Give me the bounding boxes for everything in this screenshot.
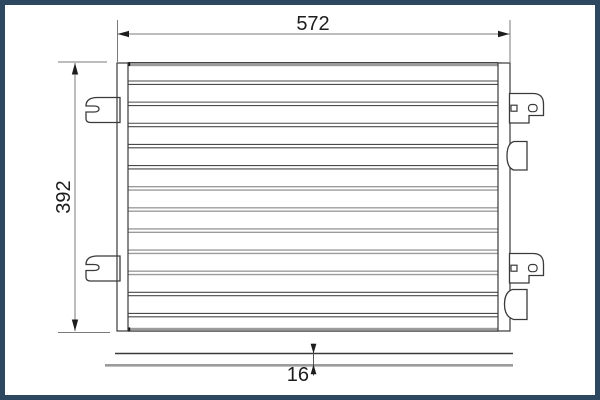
depth-side-view (105, 354, 513, 366)
mount-bracket-top-right (510, 94, 544, 124)
left-tank (117, 63, 128, 331)
condenser-diagram: 572 392 16 (0, 0, 600, 400)
pipe-fitting-upper (507, 142, 527, 171)
height-dimension: 392 (53, 62, 110, 333)
core-bottom-header (128, 328, 498, 331)
pipe-fitting-lower (505, 290, 528, 320)
core-top-header (128, 63, 498, 66)
mount-bracket-bottom-left (86, 256, 120, 281)
core-face (128, 63, 498, 331)
arrow-down-icon (311, 344, 317, 354)
width-dimension: 572 (118, 13, 511, 62)
height-dimension-label: 392 (53, 180, 75, 213)
arrow-up-icon (72, 63, 78, 75)
mount-bracket-bottom-right (510, 254, 544, 284)
right-tank (498, 63, 510, 331)
depth-dimension-label: 16 (287, 364, 309, 386)
bracket-outline (510, 254, 544, 284)
arrow-left-icon (118, 31, 130, 37)
technical-drawing-canvas: 572 392 16 (0, 0, 600, 400)
mount-bracket-top-left (86, 98, 120, 123)
arrow-right-icon (498, 31, 510, 37)
width-dimension-label: 572 (296, 13, 329, 35)
bracket-outline (510, 94, 544, 124)
arrow-down-icon (72, 320, 78, 332)
